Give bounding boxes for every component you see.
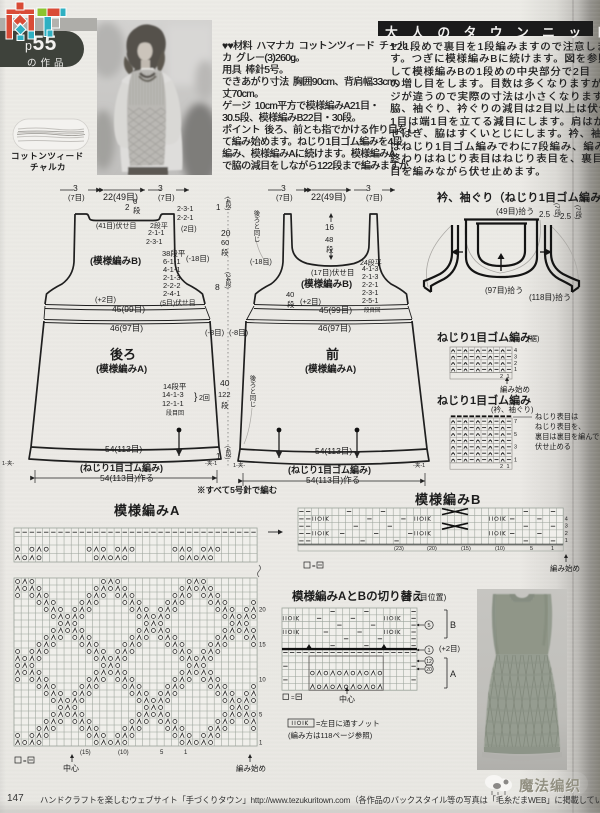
svg-text:A: A (450, 669, 456, 679)
svg-text:=: = (291, 696, 295, 702)
svg-text:1: 1 (427, 648, 430, 654)
svg-text:20: 20 (426, 667, 432, 673)
svg-text:5: 5 (427, 623, 430, 629)
svg-text:B: B (450, 620, 456, 630)
svg-text:12: 12 (426, 659, 432, 665)
